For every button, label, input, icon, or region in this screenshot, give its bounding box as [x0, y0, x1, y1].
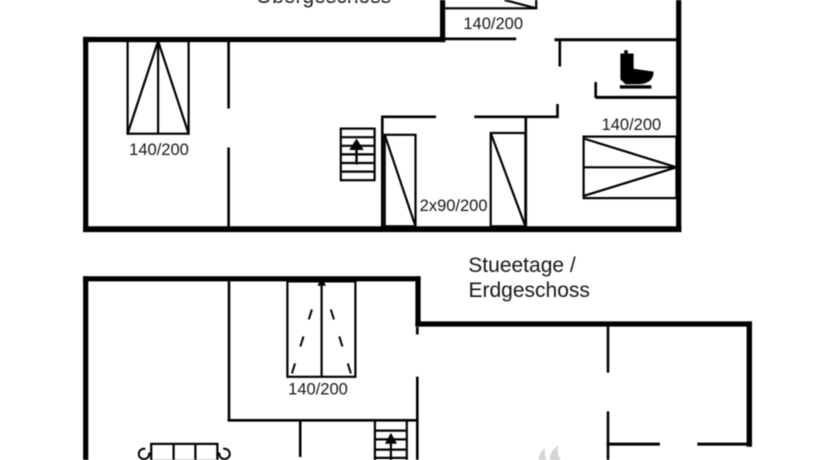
svg-text:Stueetage /: Stueetage / — [468, 254, 576, 277]
svg-text:140/200: 140/200 — [463, 15, 523, 33]
svg-text:140/200: 140/200 — [129, 141, 189, 159]
svg-text:Obergeschoss: Obergeschoss — [256, 0, 391, 8]
svg-text:140/200: 140/200 — [288, 380, 348, 398]
svg-text:Erdgeschoss: Erdgeschoss — [469, 279, 590, 302]
svg-text:140/200: 140/200 — [602, 116, 662, 134]
svg-text:2x90/200: 2x90/200 — [420, 197, 488, 215]
